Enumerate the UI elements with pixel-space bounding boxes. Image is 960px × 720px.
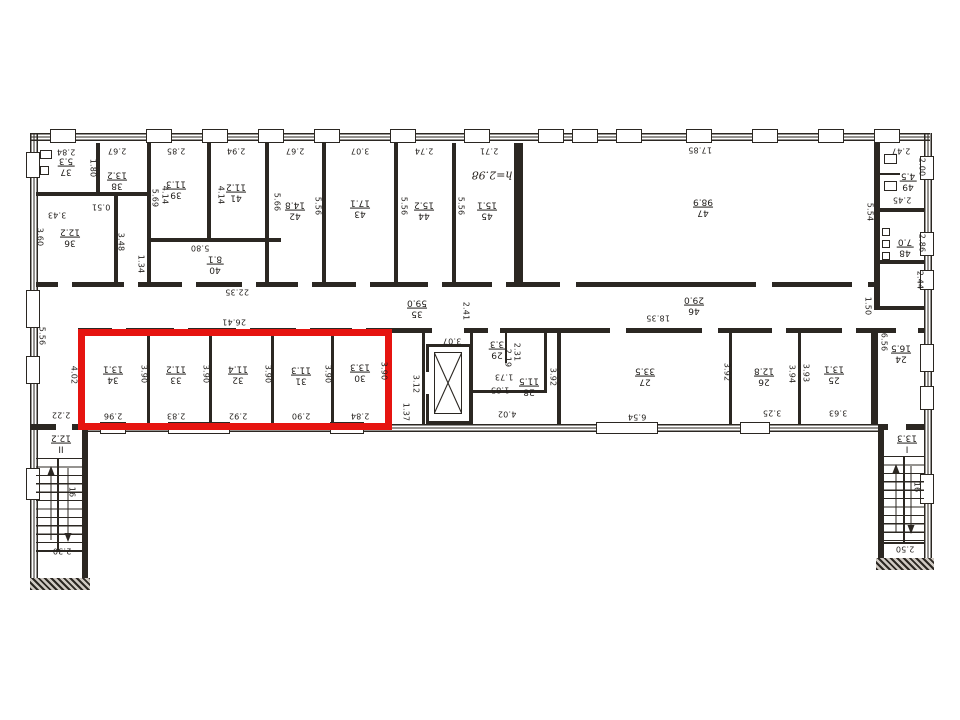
dimension-label: 2.86 — [918, 234, 927, 253]
room-number: 33 — [166, 374, 186, 385]
room-area: 98.9 — [693, 196, 713, 206]
room-number: 26 — [754, 376, 774, 387]
room-area: 11.2 — [226, 181, 246, 191]
room-number: 36 — [60, 237, 80, 248]
dimension-label: 2.84 — [351, 412, 370, 421]
dimension-label: 3.63 — [829, 409, 848, 418]
room-area: 12.2 — [60, 226, 80, 236]
dimension-label: 22.35 — [225, 288, 249, 297]
room-area: 11.3 — [291, 364, 311, 374]
dimension-label: 5.80 — [191, 244, 210, 253]
dimension-label: 1.73 — [495, 373, 514, 382]
labels-layer: 375.33813.23911.34111.2408.13612.24214.8… — [0, 0, 960, 720]
dimension-label: 2.47 — [892, 147, 911, 156]
dimension-label: 5.56 — [400, 197, 409, 216]
room-number: 43 — [350, 208, 370, 219]
dimension-label: 2.00 — [918, 158, 927, 177]
room-number: 28 — [519, 386, 539, 397]
room-label: II12.2 — [51, 432, 71, 453]
room-number: 47 — [693, 207, 713, 218]
dimension-label: 3.48 — [117, 233, 126, 252]
dimension-label: 18.35 — [646, 314, 670, 323]
room-area: 8.1 — [206, 253, 223, 263]
room-number: 45 — [477, 210, 497, 221]
room-area: 5.3 — [57, 155, 74, 165]
room-area: 15.2 — [414, 199, 434, 209]
dimension-label: 2.67 — [286, 147, 305, 156]
room-label: 3111.3 — [291, 364, 311, 385]
room-area: 13.1 — [824, 363, 844, 373]
dimension-label: 3.94 — [788, 365, 797, 384]
dimension-label: 4.02 — [70, 366, 79, 385]
dimension-label: 1.34 — [137, 255, 146, 274]
dimension-label: 2.96 — [104, 412, 123, 421]
room-number: 38 — [107, 180, 127, 191]
dimension-label: 26.41 — [222, 318, 246, 327]
room-number: 27 — [635, 376, 655, 387]
dimension-label: 2.45 — [893, 196, 912, 205]
dimension-label: 3.90 — [324, 365, 333, 384]
room-area: 29.0 — [684, 294, 704, 304]
dimension-label: 2.19 — [504, 349, 513, 368]
dimension-label: 1.80 — [89, 159, 98, 178]
dimension-label: 4.02 — [498, 410, 517, 419]
dimension-label: 2.71 — [480, 147, 499, 156]
dimension-label: 5.66 — [273, 193, 282, 212]
room-area: 17.1 — [350, 197, 370, 207]
room-number: 24 — [891, 353, 911, 364]
dimension-label: 2.50 — [896, 545, 915, 554]
room-area: 13.1 — [103, 363, 123, 373]
room-number: II — [51, 443, 71, 454]
room-number: 34 — [103, 374, 123, 385]
room-number: 25 — [824, 374, 844, 385]
room-label: 3013.3 — [350, 361, 370, 382]
dimension-label: 3.60 — [36, 228, 45, 247]
dimension-label: 1.50 — [864, 297, 873, 316]
dimension-label: 2.84 — [57, 148, 76, 157]
room-area: 4.5 — [899, 170, 916, 180]
room-number: 37 — [57, 166, 74, 177]
room-number: 40 — [206, 264, 223, 275]
room-area: 12.2 — [51, 432, 71, 442]
room-area: 11.5 — [519, 375, 539, 385]
room-label: 4798.9 — [693, 196, 713, 217]
dimension-label: 1.85 — [491, 386, 510, 395]
room-label: 408.1 — [206, 253, 223, 274]
room-area: 14.8 — [285, 199, 305, 209]
dimension-label: 3.90 — [140, 365, 149, 384]
room-number: 42 — [285, 210, 305, 221]
room-label: 4214.8 — [285, 199, 305, 220]
dimension-label: 3.12 — [412, 375, 421, 394]
room-label: 3559.0 — [407, 297, 427, 318]
dimension-label: 3.07 — [443, 337, 462, 346]
room-number: 49 — [899, 181, 916, 192]
room-number: 31 — [291, 375, 311, 386]
room-label: 2811.5 — [519, 375, 539, 396]
room-number: 41 — [226, 192, 246, 203]
room-area: 16.5 — [891, 342, 911, 352]
dimension-label: 6.54 — [628, 413, 647, 422]
room-label: 2733.5 — [635, 365, 655, 386]
dimension-label: 3.92 — [549, 368, 558, 387]
room-label: 2416.5 — [891, 342, 911, 363]
dimension-label: 2.67 — [108, 147, 127, 156]
dimension-label: 17.85 — [688, 146, 712, 155]
room-label: 4415.2 — [414, 199, 434, 220]
room-area: 33.5 — [635, 365, 655, 375]
room-label: 2513.1 — [824, 363, 844, 384]
room-area: 13.3 — [897, 432, 917, 442]
dimension-label: 4.14 — [217, 186, 226, 205]
dimension-label: 5.56 — [314, 197, 323, 216]
dimension-label: 5.56 — [38, 327, 47, 346]
room-label: 3413.1 — [103, 363, 123, 384]
handwritten-note: h=2.98 — [472, 169, 513, 182]
dimension-label: 16 — [913, 482, 922, 493]
room-number: 46 — [684, 305, 704, 316]
room-label: 494.5 — [899, 170, 916, 191]
room-label: 487.0 — [896, 236, 913, 257]
dimension-label: 0.51 — [92, 203, 111, 212]
dimension-label: 3.07 — [351, 147, 370, 156]
dimension-label: 3.92 — [723, 363, 732, 382]
dimension-label: 3.43 — [48, 211, 67, 220]
dimension-label: 2.31 — [513, 343, 522, 362]
dimension-label: 5.56 — [457, 197, 466, 216]
dimension-label: 5.69 — [151, 189, 160, 208]
room-number: 32 — [228, 374, 248, 385]
dimension-label: 2.74 — [415, 147, 434, 156]
room-area: 12.8 — [754, 365, 774, 375]
dimension-label: 2.41 — [462, 302, 471, 321]
dimension-label: 2.44 — [916, 271, 925, 290]
room-area: 59.0 — [407, 297, 427, 307]
room-label: 3211.4 — [228, 363, 248, 384]
dimension-label: 3.90 — [264, 365, 273, 384]
room-label: 4629.0 — [684, 294, 704, 315]
room-area: 3.3 — [488, 338, 505, 348]
dimension-label: 2.94 — [227, 147, 246, 156]
dimension-label: 2.92 — [229, 412, 248, 421]
dimension-label: 16 — [68, 487, 77, 498]
room-number: I — [897, 443, 917, 454]
dimension-label: 3.90 — [202, 365, 211, 384]
dimension-label: 2.30 — [53, 547, 72, 556]
dimension-label: 3.90 — [380, 362, 389, 381]
dimension-label: 6.56 — [880, 333, 889, 352]
dimension-label: 2.90 — [292, 412, 311, 421]
room-number: 44 — [414, 210, 434, 221]
room-label: 4111.2 — [226, 181, 246, 202]
floor-plan: 375.33813.23911.34111.2408.13612.24214.8… — [0, 0, 960, 720]
room-label: 3813.2 — [107, 169, 127, 190]
room-label: 2612.8 — [754, 365, 774, 386]
room-area: 13.3 — [350, 361, 370, 371]
room-area: 7.0 — [896, 236, 913, 246]
room-label: 3311.2 — [166, 363, 186, 384]
room-area: 11.4 — [228, 363, 248, 373]
dimension-label: 3.93 — [802, 364, 811, 383]
dimension-label: 3.25 — [763, 409, 782, 418]
room-area: 11.2 — [166, 363, 186, 373]
room-number: 48 — [896, 247, 913, 258]
dimension-label: 2.83 — [167, 412, 186, 421]
dimension-label: 1.37 — [402, 403, 411, 422]
room-label: 3612.2 — [60, 226, 80, 247]
room-area: 13.2 — [107, 169, 127, 179]
room-area: 15.1 — [477, 199, 497, 209]
room-number: 30 — [350, 372, 370, 383]
room-label: I13.3 — [897, 432, 917, 453]
dimension-label: 5.54 — [866, 203, 875, 222]
room-label: 4317.1 — [350, 197, 370, 218]
room-number: 35 — [407, 308, 427, 319]
dimension-label: 2.22 — [52, 411, 71, 420]
room-label: 4515.1 — [477, 199, 497, 220]
room-label: 375.3 — [57, 155, 74, 176]
dimension-label: 2.85 — [167, 147, 186, 156]
dimension-label: 4.14 — [161, 186, 170, 205]
